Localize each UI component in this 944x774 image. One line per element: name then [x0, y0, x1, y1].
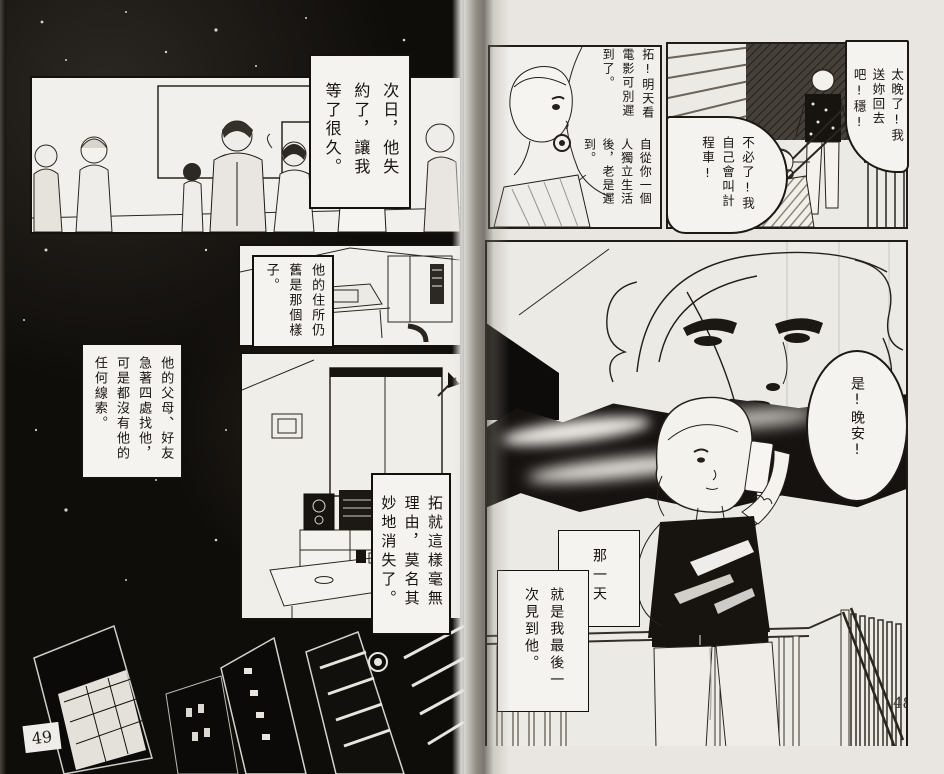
panel-farewell: 是!晚安! 那一天 就是我最後一次見到他。 48	[485, 240, 908, 746]
page-number-right: 48	[893, 694, 908, 713]
bubble-taxi-text: 不必了!我自己會叫計程車!	[697, 136, 757, 214]
page-number-left: 49	[31, 727, 54, 748]
caption-next-day: 次日，他失約了，讓我等了很久。	[309, 54, 411, 209]
caption-last-time-text: 就是我最後一次見到他。	[518, 587, 568, 695]
caption-vanished-text: 拓就這樣毫無理由，莫名其妙地消失了。	[376, 495, 446, 613]
bubble-movie: 拓!明天看電影可別遲到了。	[596, 48, 658, 134]
caption-last-time: 就是我最後一次見到他。	[497, 570, 589, 712]
bubble-too-late-text: 太晚了!我送妳回去吧!穩!	[849, 68, 905, 146]
page-number-left-box: 49	[22, 722, 61, 753]
manga-spread: 次日，他失約了，讓我等了很久。 他的住所仍舊是那個樣子。 他的父母、好友急著四處…	[0, 0, 944, 774]
caption-residence: 他的住所仍舊是那個樣子。	[252, 255, 334, 348]
bubble-always-late: 自從你一個人獨立生活後，老是遲到。	[578, 138, 656, 226]
caption-next-day-text: 次日，他失約了，讓我等了很久。	[317, 82, 403, 182]
bubble-goodnight: 是!晚安!	[806, 350, 908, 502]
caption-that-day-text: 那一天	[592, 548, 606, 610]
caption-search-text: 他的父母、好友急著四處找他，可是都沒有他的任何線索。	[88, 356, 176, 466]
bubble-movie-text: 拓!明天看電影可別遲到了。	[597, 48, 656, 124]
caption-vanished: 拓就這樣毫無理由，莫名其妙地消失了。	[371, 473, 451, 635]
bubble-goodnight-text: 是!晚安!	[850, 376, 864, 476]
bubble-taxi: 不必了!我自己會叫計程車!	[666, 116, 788, 234]
bubble-always-late-text: 自從你一個人獨立生活後，老是遲到。	[580, 138, 654, 210]
caption-residence-text: 他的住所仍舊是那個樣子。	[259, 263, 327, 341]
caption-search: 他的父母、好友急著四處找他，可是都沒有他的任何線索。	[81, 343, 183, 479]
